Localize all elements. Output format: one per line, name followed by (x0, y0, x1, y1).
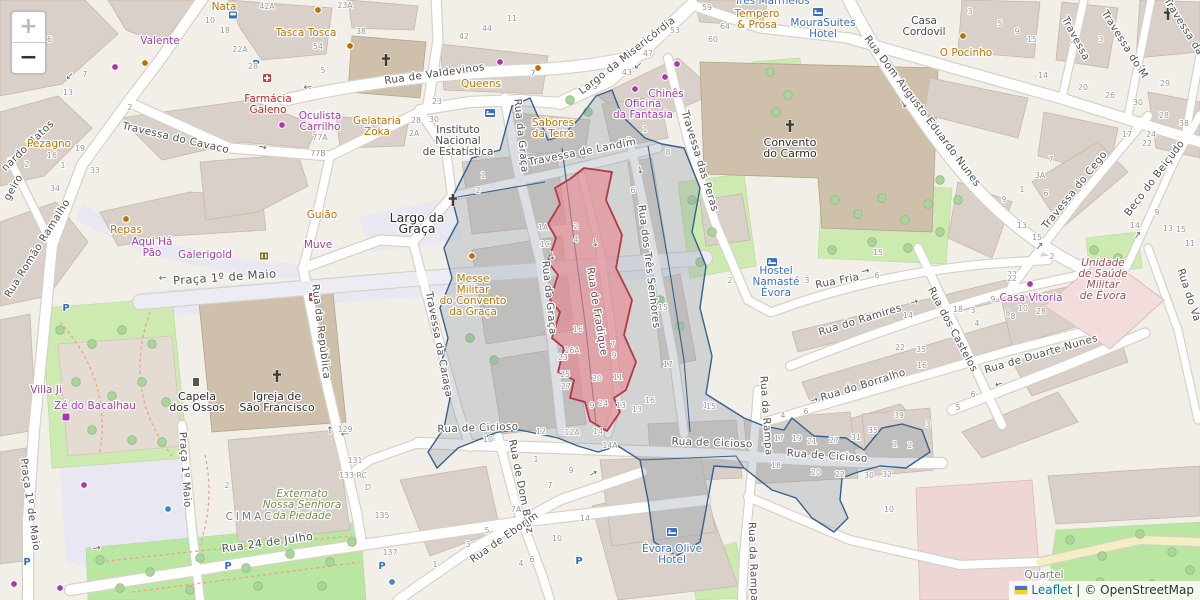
house-number: 21 (807, 437, 817, 446)
house-number: 19 (75, 144, 85, 153)
oneway-arrow-icon: → (588, 238, 600, 248)
house-number: 23 (558, 353, 568, 362)
house-number: 16 (47, 151, 57, 160)
house-number: 14 (903, 311, 913, 320)
house-number: 22A (232, 45, 248, 54)
house-number: 135 (375, 511, 390, 520)
house-number: 1 (433, 560, 438, 569)
oneway-arrow-icon: → (546, 251, 558, 260)
tree-icon (196, 554, 205, 563)
house-number: 12A (564, 428, 580, 437)
house-number: 15 (1032, 233, 1042, 242)
tree-icon (708, 228, 717, 237)
oneway-arrow-icon: → (860, 265, 870, 277)
cafe-icon (123, 216, 130, 223)
house-number: 42 (459, 32, 469, 41)
oneway-arrow-icon: → (634, 165, 646, 174)
poi-label: Casa Vitoria (999, 292, 1062, 304)
oneway-arrow-icon: ← (303, 82, 312, 94)
shop-icon (632, 86, 639, 93)
house-number: 4 (781, 411, 786, 420)
house-number: 28 (1159, 111, 1169, 120)
attribution-bar: Leaflet|© OpenStreetMap (1009, 581, 1200, 600)
poi-label: Três Marmelos (733, 0, 809, 7)
house-number: 16 (645, 396, 655, 405)
tree-icon (116, 584, 125, 593)
house-number: 3A (1035, 171, 1046, 180)
house-number: 15 (873, 248, 883, 257)
poi-label: Tempero& Prosa (734, 8, 780, 31)
parking-icon: P (224, 561, 231, 572)
tree-icon (254, 582, 263, 591)
tree-icon (286, 550, 295, 559)
poi-label: Villa Ji (30, 384, 62, 396)
house-number: 6 (971, 390, 976, 399)
tree-icon (326, 558, 335, 567)
tree-icon (128, 436, 137, 445)
house-number: 8 (1011, 312, 1016, 321)
hotel-icon (813, 8, 824, 17)
house-number: 6 (1044, 189, 1049, 198)
osm-link[interactable]: OpenStreetMap (1100, 583, 1194, 597)
house-number: 15 (706, 402, 716, 411)
tree-icon (158, 438, 167, 447)
house-number: 28 (411, 116, 421, 125)
house-number: 29 (1160, 79, 1170, 88)
house-number: 25 (560, 370, 570, 379)
toy-shop-icon (674, 61, 681, 68)
house-number: 38 (1179, 119, 1189, 128)
house-number: 42A (259, 2, 275, 11)
road (1148, 248, 1198, 420)
tree-icon (318, 582, 327, 591)
house-number: 2 (908, 441, 913, 450)
poi-label: Unidadede SaúdeMilitarde Évora (1078, 257, 1127, 302)
tree-icon (1186, 566, 1195, 575)
house-number: 6 (875, 271, 880, 280)
house-number: 15 (1027, 35, 1037, 44)
house-number: 26 (1105, 91, 1115, 100)
house-number: 2 (476, 186, 481, 195)
statue-icon (193, 378, 200, 387)
tree-icon (118, 326, 127, 335)
tree-icon (878, 194, 887, 203)
map-image[interactable]: ←←←→←→←→→→→→→→→→→→←→ PPPPPP 167132101822… (0, 0, 1200, 600)
house-number: 3 (805, 276, 810, 285)
house-number: 12 (536, 427, 546, 436)
tree-icon (242, 564, 251, 573)
poi-label: OculistaCarrilho (299, 110, 342, 133)
parking-icon: P (575, 556, 582, 567)
house-number: 14A (602, 441, 618, 450)
tree-icon (901, 216, 910, 225)
poi-label: Valente (140, 35, 179, 47)
oneway-arrow-icon: ← (158, 273, 167, 285)
house-number: 18 (771, 461, 781, 470)
house-number: 19 (792, 434, 802, 443)
poi-label: Repas (110, 224, 142, 236)
tree-icon (766, 68, 775, 77)
tree-icon (72, 378, 81, 387)
tree-icon (56, 326, 65, 335)
house-number: 35 (916, 345, 926, 354)
house-number: 4 (975, 319, 980, 328)
house-number: 59 (702, 3, 712, 12)
hostel-icon (485, 109, 496, 118)
shop-icon (497, 59, 504, 66)
oneway-arrow-icon: → (92, 542, 102, 554)
restaurant-icon (469, 253, 476, 260)
house-number: 9 (1155, 208, 1160, 217)
house-number: 10 (552, 534, 562, 543)
house-number: 17 (1122, 130, 1132, 139)
poi-label: Tasca Tosca (275, 27, 337, 39)
street-label: Rua do Va (1175, 267, 1200, 323)
building (200, 154, 308, 220)
house-number: 10 (884, 505, 894, 514)
house-number: 17 (774, 434, 784, 443)
house-number: 14 (580, 514, 590, 523)
tree-icon (936, 176, 945, 185)
restaurant-icon (142, 60, 149, 67)
house-number: 28 (248, 62, 258, 71)
house-number: 4 (519, 559, 524, 568)
house-number: 24 (598, 399, 608, 408)
zoom-control: + − (10, 10, 47, 75)
house-number: 22 (835, 470, 845, 479)
copyright-symbol: © (1084, 583, 1100, 597)
house-number: 9 (590, 401, 595, 410)
house-number: 133 RC (339, 471, 367, 480)
pharmacy-icon (263, 74, 272, 83)
tree-icon (868, 238, 877, 247)
house-number: 1 (534, 455, 539, 464)
parking-letter: P (224, 561, 231, 572)
house-number: 13 (632, 405, 642, 414)
tree-icon (88, 426, 97, 435)
poi-label: Zé do Bacalhau (54, 400, 136, 412)
house-number: 5 (321, 66, 326, 75)
fountain-icon (389, 579, 396, 586)
tree-icon (1090, 246, 1099, 255)
house-number: 3 (1099, 35, 1104, 44)
footpath (200, 455, 209, 545)
oneway-arrow-icon: → (325, 426, 336, 434)
flower-shop-icon (1027, 281, 1034, 288)
cafe-icon (535, 65, 542, 72)
house-number: 7 (531, 69, 536, 78)
parking-letter: P (62, 303, 69, 314)
house-number: 2 (225, 481, 230, 490)
poi-label: Nata (212, 1, 237, 13)
house-number: 10 (1018, 304, 1028, 313)
tree-icon (1136, 530, 1145, 539)
house-number: 22 (895, 343, 905, 352)
house-number: 77B (310, 149, 325, 158)
house-number: 1 (893, 440, 898, 449)
cafe-icon (81, 482, 88, 489)
house-number: 1A (538, 223, 549, 232)
house-number: 14 (1130, 221, 1140, 230)
house-number: 6 (631, 186, 636, 195)
tree-icon (186, 586, 195, 595)
parking-letter: P (575, 556, 582, 567)
road (428, 0, 438, 105)
tree-icon (96, 556, 105, 565)
house-number: 9 (612, 351, 617, 360)
house-number: 131 (348, 456, 363, 465)
house-number: 13 (63, 88, 73, 97)
house-number: 10 (205, 16, 215, 25)
tree-icon (772, 108, 781, 117)
road (356, 443, 418, 470)
house-number: 60 (708, 35, 718, 44)
tree-icon (146, 568, 155, 577)
house-number: 13 (1163, 224, 1173, 233)
house-number: 3 (466, 540, 471, 549)
poi-label: HostelNamastéÉvora (753, 265, 800, 299)
house-number: 7 (1049, 155, 1054, 164)
house-number: 44 (482, 24, 492, 33)
clothes-shop-icon (112, 64, 119, 71)
restaurant-icon (960, 33, 967, 40)
tree-icon (784, 91, 793, 100)
parking-icon: P (23, 557, 30, 568)
furniture-icon (62, 413, 70, 421)
tree-icon (1066, 536, 1075, 545)
house-number: 15 (1176, 225, 1186, 234)
tree-icon (924, 200, 933, 209)
tree-icon (566, 96, 575, 105)
tree-icon (854, 210, 863, 219)
house-number: 16 (573, 325, 583, 334)
house-number: 77A (312, 133, 328, 142)
house-number: 33 (90, 166, 100, 175)
cafe-icon (315, 7, 322, 14)
house-number: 9 (1002, 195, 1007, 204)
tree-icon (904, 244, 913, 253)
building (1048, 466, 1200, 524)
tree-icon (348, 538, 357, 547)
fountain-icon (165, 506, 172, 513)
house-number: 1 (1020, 185, 1025, 194)
house-number: 2 (128, 103, 133, 112)
house-number: 7 (548, 481, 553, 490)
tree-icon (108, 392, 117, 401)
house-number: 64 (720, 22, 730, 31)
house-number: 2 (574, 222, 579, 231)
house-number: 11 (1185, 239, 1195, 248)
house-number: D (365, 483, 371, 492)
house-number: 23 (432, 97, 442, 106)
house-number: 14 (1038, 71, 1048, 80)
house-number: 18 (220, 26, 230, 35)
poi-label: Guião (307, 209, 338, 221)
poi-label: Saboresda Terra (532, 117, 574, 140)
hotel-icon (667, 528, 678, 537)
poi-label: O Pocinho (940, 47, 992, 59)
house-number: 1 (643, 125, 648, 134)
poi-label: FarmáciaGaleno (244, 93, 291, 116)
house-number: 17 (663, 360, 673, 369)
house-number: 30 (1133, 98, 1143, 107)
tree-icon (828, 246, 837, 255)
house-number: 23A (337, 1, 353, 10)
house-number: 13 (616, 401, 626, 410)
poi-label: Pezagno (27, 138, 71, 150)
house-number: 2 (728, 276, 733, 285)
poi-label: Galerigold (178, 249, 232, 261)
ukraine-flag-icon (1015, 586, 1027, 594)
house-number: 27 (829, 436, 839, 445)
poi-label: Muve (304, 239, 332, 251)
house-number: 10 (483, 435, 493, 444)
tree-icon (831, 196, 840, 205)
house-number: 20 (1078, 83, 1088, 92)
parking-letter: P (23, 557, 30, 568)
attribution-separator: | (1076, 583, 1080, 597)
clothes-shop-icon (279, 122, 286, 129)
oneway-arrow-icon: → (909, 296, 920, 309)
tree-icon (148, 340, 157, 349)
tree-icon (1168, 548, 1177, 557)
tree-icon (954, 196, 963, 205)
house-number: 20 (592, 374, 602, 383)
parking-icon: P (62, 303, 69, 314)
house-number: 28 (1036, 307, 1046, 316)
street-label: Rua da Rampa (746, 522, 761, 600)
bar-icon (57, 585, 64, 592)
leaflet-link[interactable]: Leaflet (1031, 583, 1072, 597)
poi-label: Queens (461, 78, 501, 90)
house-number: 38 (356, 27, 366, 36)
house-number: 3 (971, 306, 976, 315)
house-number: 27 (561, 382, 571, 391)
house-number: 54 (313, 42, 323, 51)
shop-icon (662, 74, 669, 81)
house-number: 5 (998, 19, 1003, 28)
house-number: 1 (61, 161, 66, 170)
house-number: 129 (338, 425, 353, 434)
house-number: 9 (991, 295, 996, 304)
house-number: 5 (956, 403, 961, 412)
house-number: 13 (1017, 221, 1027, 230)
house-number: 30 (864, 471, 874, 480)
house-number: 6 (530, 555, 535, 564)
house-number: 35 (868, 426, 878, 435)
house-number: 20 (811, 468, 821, 477)
oneway-arrow-icon: → (587, 467, 600, 481)
zoom-out-button[interactable]: − (12, 43, 45, 73)
house-number: 11 (507, 14, 517, 23)
house-number: 9 (569, 466, 574, 475)
house-number: 39 (894, 411, 904, 420)
house-number: 8 (666, 148, 671, 157)
building (228, 430, 350, 542)
house-number: 1C (540, 240, 551, 249)
house-number: 137 (383, 548, 398, 557)
house-number: 6 (804, 407, 809, 416)
poi-label: CIMAC (226, 511, 275, 523)
house-number: 2A (409, 129, 420, 138)
poi-label: CasaCordovil (902, 15, 945, 38)
tree-icon (936, 228, 945, 237)
building (348, 0, 418, 30)
house-number: 14 (593, 427, 603, 436)
shop-icon (11, 581, 18, 588)
house-number: 34 (50, 184, 60, 193)
house-number: 9 (1015, 27, 1020, 36)
tree-icon (138, 378, 147, 387)
house-number: 1 (481, 171, 486, 180)
house-number: 24 (1146, 130, 1156, 139)
parking-icon: P (378, 561, 385, 572)
house-number: 18 (953, 305, 963, 314)
restaurant-icon (347, 43, 354, 50)
house-number: 3 (926, 420, 931, 429)
map-canvas[interactable]: ←←←→←→←→→→→→→→→→→→←→ PPPPPP 167132101822… (0, 0, 1200, 600)
house-number: 5 (485, 526, 490, 535)
parking-letter: P (378, 561, 385, 572)
house-number: 7 (83, 70, 88, 79)
house-number: 3 (968, 7, 973, 16)
house-number: 32 (882, 470, 892, 479)
house-number: 2 (25, 160, 30, 169)
zoom-in-button[interactable]: + (12, 12, 45, 43)
tree-icon (88, 340, 97, 349)
museum-icon (260, 252, 269, 260)
tree-icon (1098, 552, 1107, 561)
poi-label: Conventodo Carmo (763, 136, 817, 160)
house-number: 31 (851, 433, 861, 442)
house-number: 7 (611, 340, 616, 349)
house-number: 47 (643, 49, 653, 58)
house-number: 30 (429, 115, 439, 124)
house-number: 4 (574, 235, 579, 244)
house-number: 16 (917, 361, 927, 370)
house-number: 43 (622, 68, 632, 77)
house-number: 22 (1007, 274, 1017, 283)
house-number: 2 (1050, 252, 1055, 261)
house-number: 22 (1142, 139, 1152, 148)
house-number: 11 (613, 373, 623, 382)
